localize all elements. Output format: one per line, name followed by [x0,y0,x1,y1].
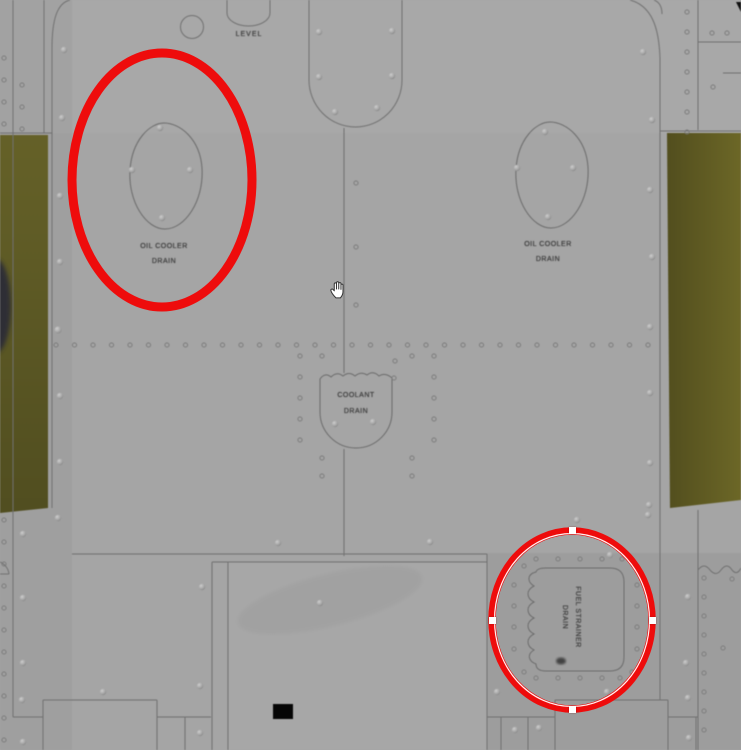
image-canvas[interactable]: LEVEL OIL COOLER DRAIN OIL COOLER DRAIN … [0,0,741,750]
annotation-ellipse-left[interactable] [72,53,252,307]
annotation-ellipse-selected[interactable] [492,531,652,709]
selection-handle-left[interactable] [489,617,496,624]
selection-handle-right[interactable] [649,617,656,624]
annotation-overlay [0,0,741,750]
annotation-shapes [0,0,741,750]
hand-cursor [328,280,345,299]
selection-handle-top[interactable] [569,527,576,534]
selection-handle-bottom[interactable] [569,706,576,713]
